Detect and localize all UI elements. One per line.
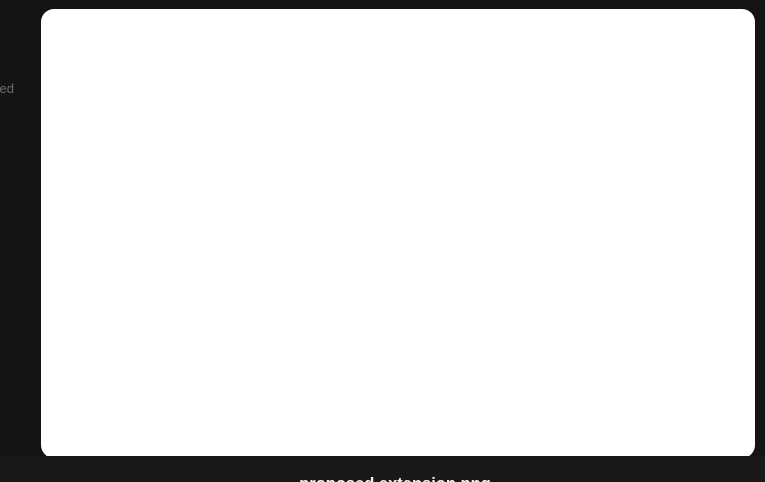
svg-text:proposed extension.png: proposed extension.png xyxy=(299,475,491,482)
svg-text:ited: ited xyxy=(0,81,14,96)
